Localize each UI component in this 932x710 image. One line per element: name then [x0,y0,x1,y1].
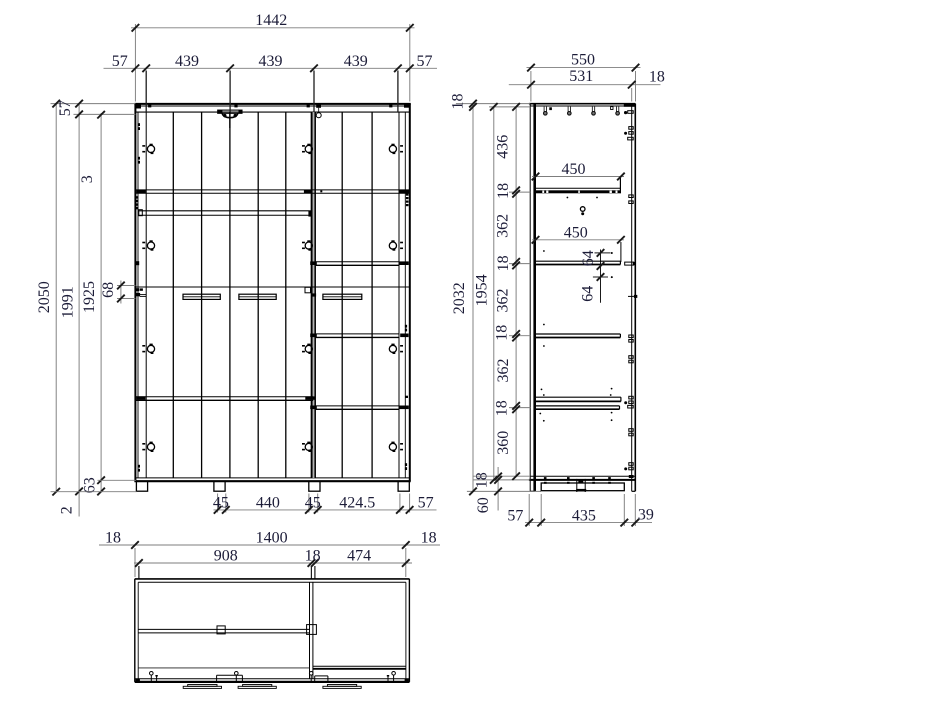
svg-text:2032: 2032 [451,282,468,314]
svg-text:57: 57 [57,100,74,116]
svg-text:1991: 1991 [59,286,76,318]
svg-text:57: 57 [417,53,433,70]
svg-text:60: 60 [475,497,492,513]
svg-text:531: 531 [569,68,593,85]
svg-text:440: 440 [256,495,280,512]
svg-text:18: 18 [495,255,512,271]
svg-text:360: 360 [495,431,512,455]
svg-text:63: 63 [81,477,98,493]
svg-text:424.5: 424.5 [339,495,375,512]
svg-text:362: 362 [495,358,512,382]
svg-text:550: 550 [571,52,595,69]
svg-text:439: 439 [175,53,199,70]
svg-text:1925: 1925 [81,281,98,313]
svg-text:2: 2 [59,506,76,514]
svg-text:18: 18 [493,325,510,341]
svg-text:2050: 2050 [36,281,53,313]
svg-text:3: 3 [79,175,96,183]
svg-text:450: 450 [562,161,586,178]
svg-text:18: 18 [649,68,665,85]
svg-text:45: 45 [213,495,229,512]
svg-text:68: 68 [100,282,117,298]
svg-text:439: 439 [344,53,368,70]
svg-text:18: 18 [450,94,467,110]
svg-text:474: 474 [347,547,371,564]
svg-text:18: 18 [105,529,121,546]
svg-text:908: 908 [214,547,238,564]
svg-text:64: 64 [580,286,597,302]
svg-text:362: 362 [495,288,512,312]
svg-text:57: 57 [507,507,523,524]
svg-text:18: 18 [421,529,437,546]
svg-text:18: 18 [305,547,321,564]
svg-text:1400: 1400 [256,529,288,546]
svg-text:1442: 1442 [255,12,287,29]
svg-text:57: 57 [112,53,128,70]
svg-text:436: 436 [494,135,511,159]
svg-text:39: 39 [638,507,654,524]
svg-text:450: 450 [564,224,588,241]
svg-text:1954: 1954 [473,274,490,306]
svg-text:362: 362 [495,214,512,238]
svg-text:18: 18 [495,183,512,199]
svg-text:64: 64 [580,250,597,266]
svg-text:45: 45 [305,495,321,512]
svg-text:57: 57 [418,495,434,512]
svg-text:435: 435 [572,507,596,524]
svg-text:439: 439 [259,53,283,70]
svg-text:18: 18 [473,472,490,488]
svg-text:18: 18 [493,400,510,416]
